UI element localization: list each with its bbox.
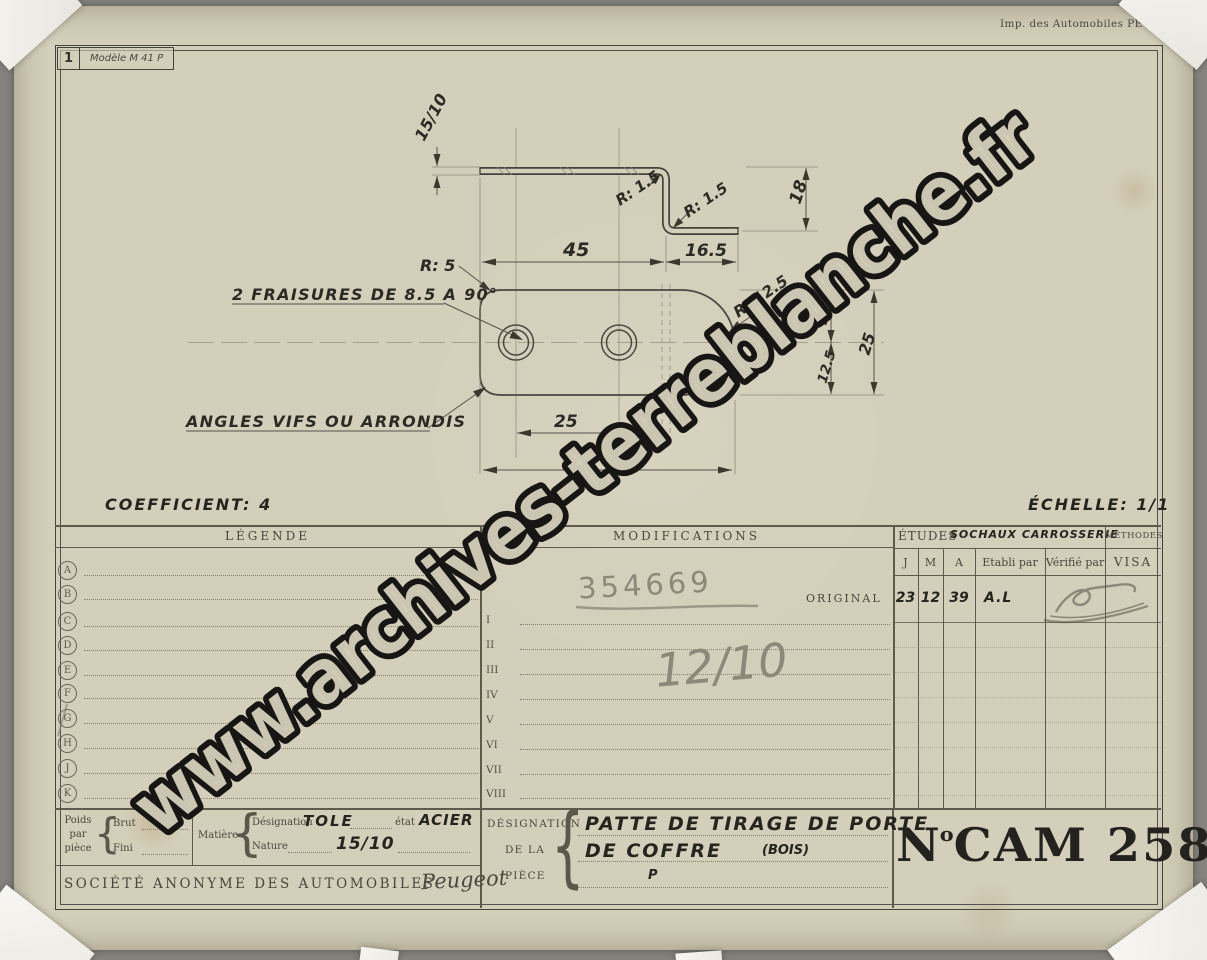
scanned-drawing-page: Imp. des Automobiles PEUGEOT. 1 Modèle M… [0,0,1207,960]
legende-line [84,639,478,651]
radius-corner-label: R: 5 [420,256,455,275]
legende-line [84,737,478,749]
legende-line [84,615,478,627]
header-underline [55,547,893,548]
piece-value-2b: (BOIS) [762,843,809,858]
piece-line-3 [578,887,888,888]
fraisures-note: 2 FRAISURES DE 8.5 A 90° [232,285,498,304]
piece-label-3: PIÈCE [505,870,546,882]
mod-row-label: II [486,639,512,651]
etudes-row-line [895,672,1161,673]
etudes-header: ÉTUDES [898,529,957,543]
fini-line [142,854,188,855]
col-etabli: Etabli par [975,556,1045,569]
legende-line [84,712,478,724]
mod-row-label: IV [486,689,512,701]
legende-mod-divider [480,525,482,908]
piece-brace: { [551,802,585,890]
etudes-row-line [895,697,1161,698]
legende-letter: K [58,784,77,803]
brut-line [142,829,188,830]
legende-letter: A [58,561,77,580]
designation-line [350,828,392,829]
nature-line2 [398,852,470,853]
legende-letter: D [58,636,77,655]
etat-value: ACIER [419,811,474,829]
legende-letter: E [58,661,77,680]
col-line-etabli-verifie [1045,548,1046,808]
nature-line [288,852,332,853]
legende-line [84,762,478,774]
societe-top-line [55,865,480,866]
dim-16-5-label: 16.5 [685,241,727,261]
original-etabli: A.L [984,590,1012,606]
pencil-note: 12/10 [653,632,790,697]
original-year: 39 [943,590,975,606]
nature-value: 15/10 [336,834,395,854]
col-line-a-etabli [975,548,976,808]
mod-row-label: V [486,714,512,726]
legende-header: LÉGENDE [55,529,480,543]
mod-row-label: VII [486,764,512,776]
part-number: NoCAM 258 [896,818,1168,872]
brut-label: Brut [113,818,136,829]
coefficient-label: COEFFICIENT: 4 [105,495,272,514]
legende-line [84,564,478,576]
angles-note: ANGLES VIFS OU ARRONDIS [184,412,466,431]
echelle-label: ÉCHELLE: 1/1 [1028,495,1170,514]
col-m: M [918,556,943,569]
mod-row-label: VI [486,739,512,751]
etudes-header-underline [893,548,1161,549]
mod-row-line [520,715,890,726]
col-j: J [893,556,918,569]
mod-row-label: I [486,614,512,626]
col-a: A [943,556,975,569]
dimension-labels: 15/10 R: 1.5 R: 1.5 45 16.5 18 R: 5 2 FR… [184,90,879,469]
original-row-underline [893,622,1161,623]
mod-row-label: III [486,664,512,676]
nature-label: Nature [252,841,288,852]
dim-25-width-label: 25 [855,330,880,357]
mod-row-label: VIII [486,788,512,800]
legende-letter: C [58,612,77,631]
part-number-value: CAM 258 [954,818,1207,872]
radius-end-label: R: 12.5 [730,272,791,321]
legende-letter: B [58,585,77,604]
legende-letter: F [58,684,77,703]
legende-letter: H [58,734,77,753]
poids-label: Poids par pièce [60,814,96,856]
etudes-row-line [895,747,1161,748]
piece-value-3: P [648,868,658,883]
mod-row-line [520,615,890,626]
original-label: ORIGINAL [806,592,882,605]
table-top-line [55,525,1161,527]
legende-letter: J [58,759,77,778]
visa-signature [1056,584,1135,612]
pencil-reference: 354669 [577,564,713,605]
peugeot-brand: Peugeot [420,866,507,894]
thickness-label: 15/10 [411,90,451,143]
piece-label-2: DE LA [505,844,545,856]
legende-line [84,588,478,600]
etat-label: état [395,817,415,828]
poids-matiere-divider [192,808,193,865]
fini-label: Fini [113,843,133,854]
etudes-row-line [895,647,1161,648]
original-day: 23 [893,590,918,606]
mod-row-line [520,765,890,776]
col-line-jm [918,548,919,808]
footer-top-line [55,808,1161,810]
etudes-row-line [895,722,1161,723]
part-number-prefix: N [896,818,940,872]
legende-line [84,687,478,699]
methodes-header: MÉTHODES [1105,531,1161,541]
dim-61-5-label: 61.5 [605,449,647,469]
piece-line-1 [578,835,888,836]
dim-25-holes-label: 25 [554,412,578,432]
legende-line [84,787,478,799]
dim-18-label: 18 [786,178,812,207]
etudes-row-line [895,772,1161,773]
etudes-handwritten: SOCHAUX CARROSSERIE [950,528,1119,541]
dimension-arrows [434,154,878,474]
legende-letter: G [58,709,77,728]
piece-value-1: PATTE DE TIRAGE DE PORTE [585,813,929,835]
dim-12-5-bottom-label: 12.5 [815,349,840,386]
piece-value-2: DE COFFRE [585,840,722,862]
modifications-header: MODIFICATIONS [480,529,893,543]
etudes-subheader-underline [893,575,1161,576]
visa-header: VISA [1105,555,1161,569]
societe-label: SOCIÉTÉ ANONYME DES AUTOMOBILES [64,876,435,892]
radius-bend-inner-label: R: 1.5 [680,179,731,222]
dim-12-5-top-label: 12.5 [815,291,840,328]
legende-line [84,664,478,676]
mod-row-line [520,740,890,751]
etudes-row-line [895,795,1161,796]
dim-45-label: 45 [562,239,589,261]
col-line-ma [943,548,944,808]
designation-value: TOLE [303,812,354,830]
original-month: 12 [918,590,943,606]
col-verifie: Vérifié par [1045,556,1105,569]
part-number-sup: o [940,822,954,846]
